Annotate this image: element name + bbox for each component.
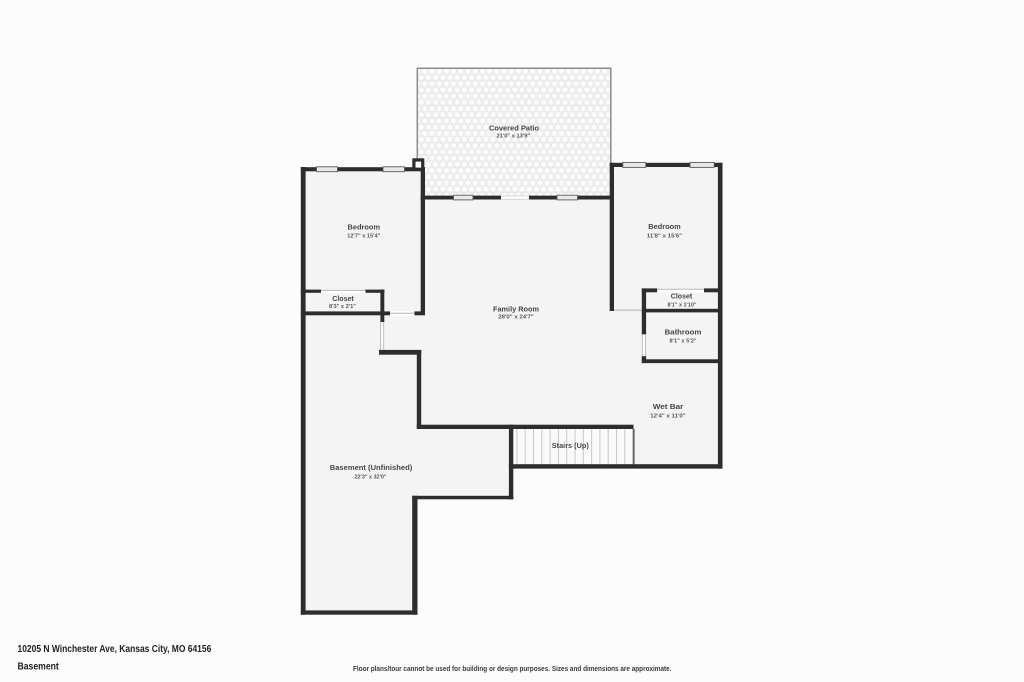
svg-text:22'3" x 32'0": 22'3" x 32'0" [355,474,387,480]
svg-text:8'3" x 2'1": 8'3" x 2'1" [329,304,356,310]
svg-text:Stairs (Up): Stairs (Up) [552,441,589,450]
svg-text:12'4" x 11'0": 12'4" x 11'0" [650,413,686,419]
svg-text:28'0" x 24'7": 28'0" x 24'7" [498,315,534,321]
svg-text:11'8" x 15'6": 11'8" x 15'6" [647,234,683,240]
svg-text:Closet: Closet [671,292,693,301]
svg-text:Closet: Closet [332,294,354,303]
svg-text:12'7" x 15'4": 12'7" x 15'4" [347,233,380,239]
svg-text:10205 N Winchester Ave, Kansas: 10205 N Winchester Ave, Kansas City, MO … [18,644,212,655]
svg-text:Bathroom: Bathroom [665,328,702,337]
svg-text:Basement: Basement [18,661,60,672]
svg-text:21'0" x 13'9": 21'0" x 13'9" [497,134,531,140]
svg-text:Bedroom: Bedroom [348,223,381,232]
svg-text:Covered Patio: Covered Patio [489,123,539,132]
svg-text:Bedroom: Bedroom [648,222,681,231]
svg-text:8'1" x 1'10": 8'1" x 1'10" [668,302,697,308]
svg-text:8'1" x 5'2": 8'1" x 5'2" [670,338,697,344]
svg-text:Wet Bar: Wet Bar [653,402,684,411]
svg-text:Family Room: Family Room [493,304,539,313]
svg-text:Basement (Unfinished): Basement (Unfinished) [330,463,413,472]
svg-text:Floor plans/tour cannot be use: Floor plans/tour cannot be used for buil… [353,666,672,673]
